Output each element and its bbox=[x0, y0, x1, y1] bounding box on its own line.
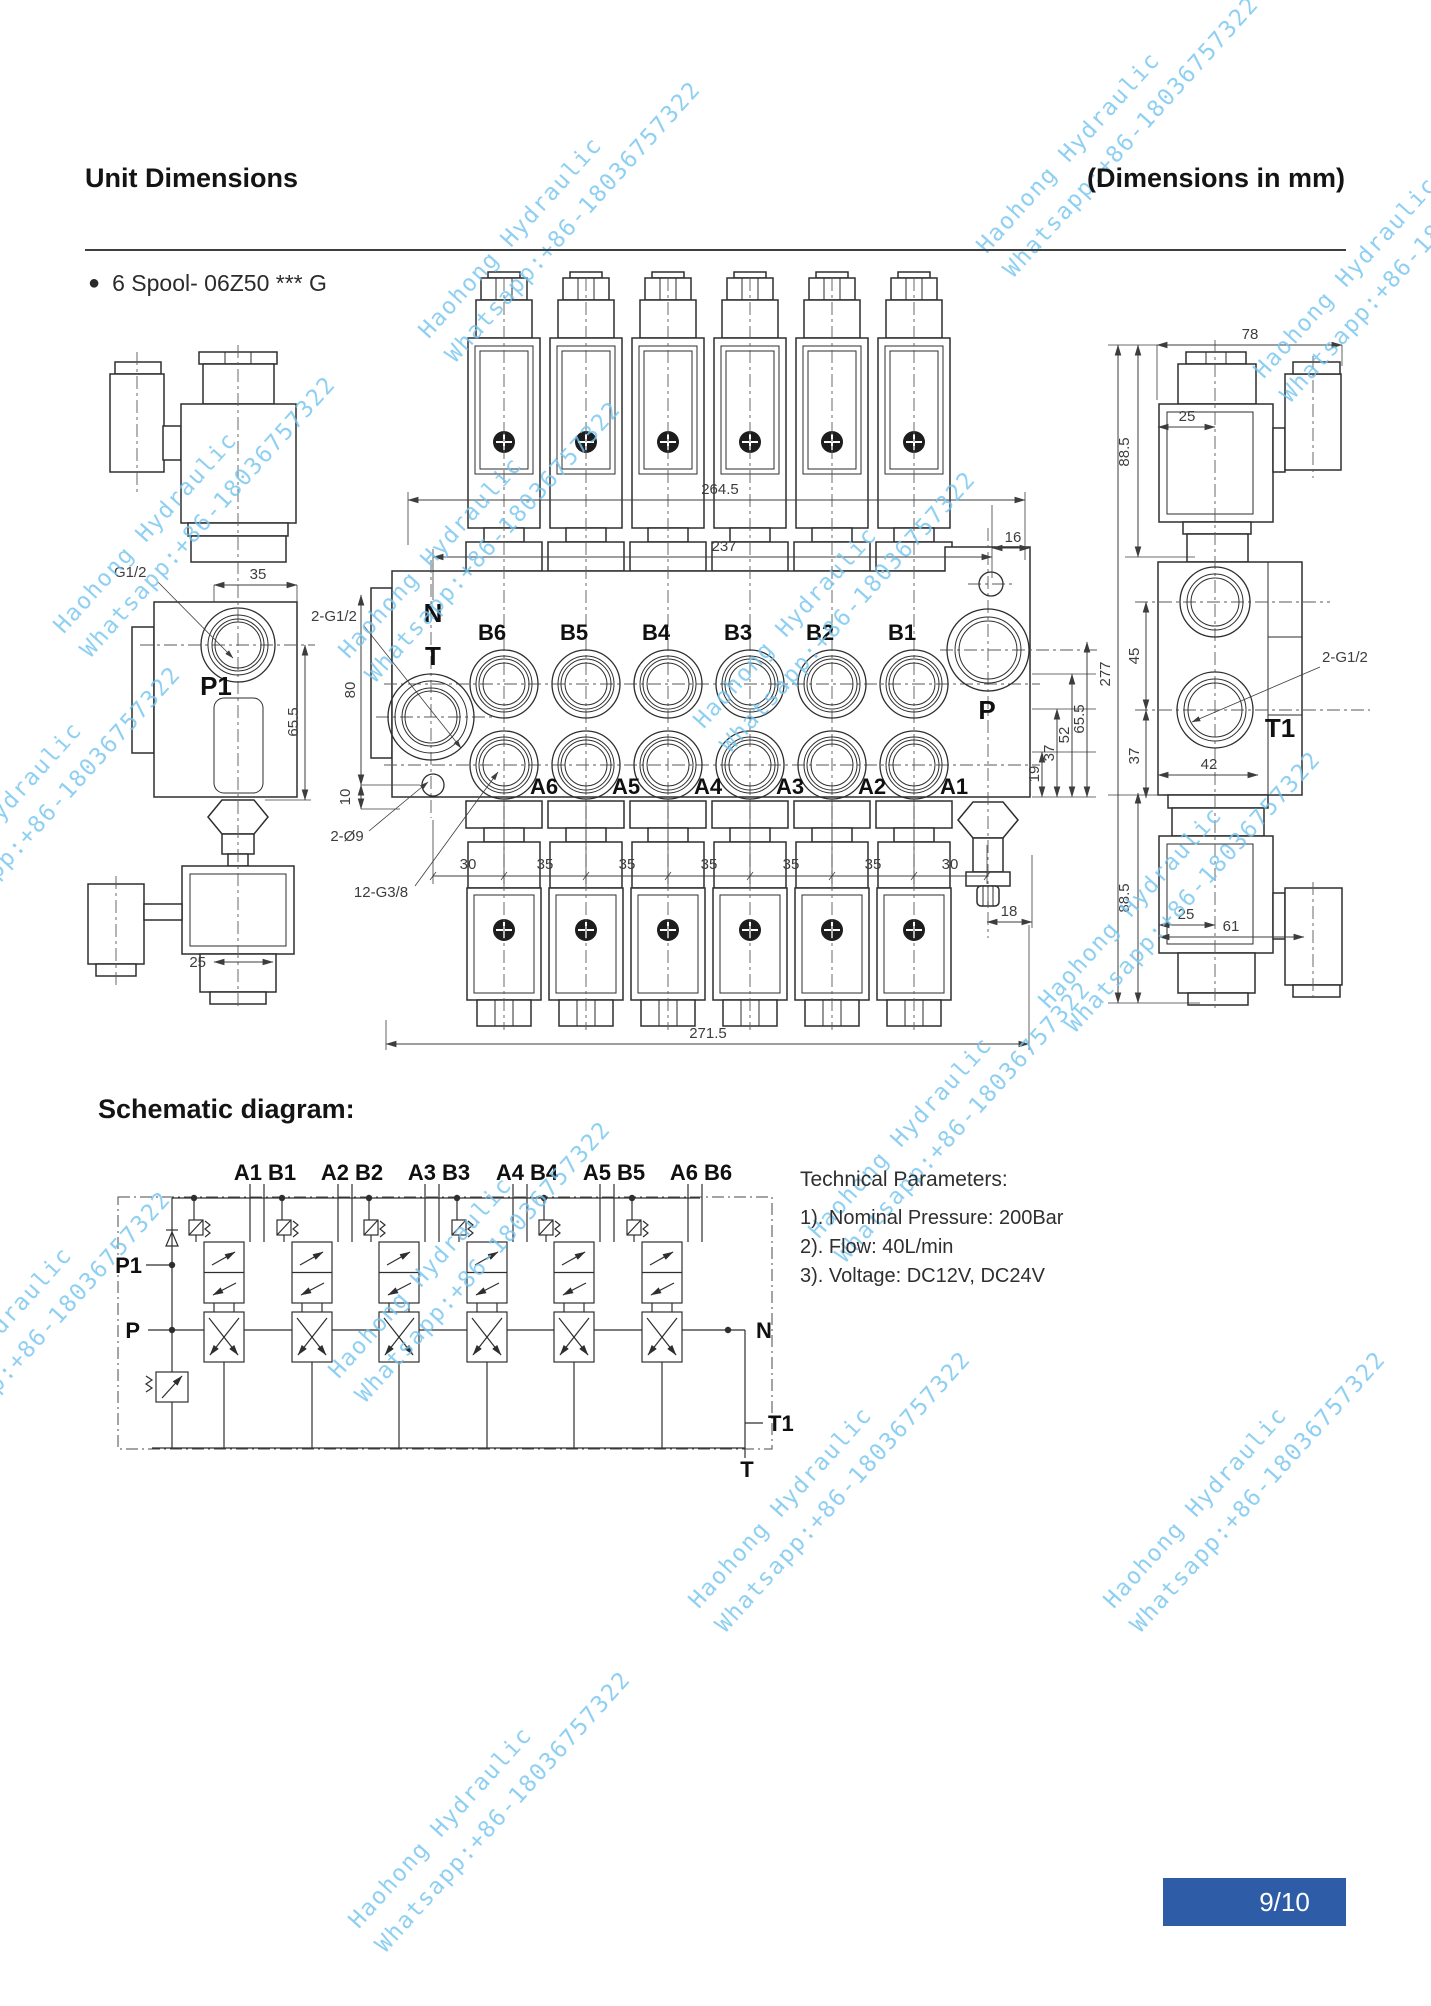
port-label-b3: B3 bbox=[724, 620, 752, 645]
bullet-icon: ● bbox=[88, 272, 100, 295]
section-label-a5b5: A5 B5 bbox=[583, 1160, 645, 1185]
tech-item-voltage: 3). Voltage: DC12V, DC24V bbox=[800, 1262, 1063, 1291]
technical-drawing: N T P B6 B5 B4 B3 B2 B1 A6 A5 A4 A3 A2 A… bbox=[0, 0, 1431, 2006]
model-label: 6 Spool- 06Z50 *** G bbox=[112, 270, 327, 297]
dim-65-5: 65.5 bbox=[1071, 704, 1088, 733]
port-label-a5: A5 bbox=[612, 774, 640, 799]
page-number: 9/10 bbox=[1259, 1887, 1310, 1917]
port-label-t: T bbox=[425, 641, 441, 671]
dim-35: 35 bbox=[250, 566, 267, 583]
section-label-a6b6: A6 B6 bbox=[670, 1160, 732, 1185]
dim-pitch-35: 35 bbox=[783, 856, 800, 873]
rail-label-t: T bbox=[740, 1457, 754, 1482]
dim-277: 277 bbox=[1097, 661, 1114, 686]
front-view: N T P B6 B5 B4 B3 B2 B1 A6 A5 A4 A3 A2 A… bbox=[311, 272, 1098, 1050]
dim-pitch-35: 35 bbox=[701, 856, 718, 873]
port-label-p: P bbox=[978, 695, 995, 725]
dim-10: 10 bbox=[337, 789, 354, 806]
dim-25-left: 25 bbox=[189, 954, 206, 971]
schematic-heading: Schematic diagram: bbox=[98, 1094, 355, 1125]
dim-pitch-35: 35 bbox=[537, 856, 554, 873]
port-label-b2: B2 bbox=[806, 620, 834, 645]
section-label-a1b1: A1 B1 bbox=[234, 1160, 296, 1185]
port-label-a2: A2 bbox=[858, 774, 886, 799]
tech-item-pressure: 1). Nominal Pressure: 200Bar bbox=[800, 1204, 1063, 1233]
dim-25-bottom: 25 bbox=[1178, 906, 1195, 923]
dimensions-unit-note: (Dimensions in mm) bbox=[1087, 163, 1345, 194]
dim-78: 78 bbox=[1242, 326, 1259, 343]
valve-section-1 bbox=[189, 1184, 264, 1448]
page-title: Unit Dimensions bbox=[85, 163, 298, 194]
right-view: 2-G1/2 T1 78 25 88.5 88.5 277 45 37 42 bbox=[1097, 326, 1370, 1012]
dim-271-5: 271.5 bbox=[689, 1025, 727, 1042]
dim-45: 45 bbox=[1126, 648, 1143, 665]
dim-16: 16 bbox=[1005, 529, 1022, 546]
valve-section-6 bbox=[627, 1184, 702, 1448]
dim-88-5-top: 88.5 bbox=[1116, 437, 1133, 466]
label-g12: G1/2 bbox=[114, 564, 147, 581]
port-label-b4: B4 bbox=[642, 620, 671, 645]
rail-label-t1: T1 bbox=[768, 1411, 794, 1436]
dim-264-5: 264.5 bbox=[701, 481, 739, 498]
port-label-a6: A6 bbox=[530, 774, 558, 799]
dim-pitch-35: 35 bbox=[619, 856, 636, 873]
rail-label-p1: P1 bbox=[115, 1253, 142, 1278]
port-label-b5: B5 bbox=[560, 620, 588, 645]
port-label-n: N bbox=[424, 598, 443, 628]
right-dim-chain: 19 37 52 65.5 bbox=[1026, 642, 1096, 797]
dim-42: 42 bbox=[1201, 756, 1218, 773]
valve-section-4 bbox=[452, 1184, 527, 1448]
port-label-a3: A3 bbox=[776, 774, 804, 799]
label-12-g38: 12-G3/8 bbox=[354, 884, 408, 901]
dim-80: 80 bbox=[342, 682, 359, 699]
valve-section-2 bbox=[277, 1184, 352, 1448]
schematic-diagram: A1 B1 A2 B2 A3 B3 A4 B4 A5 B5 A6 B6 P1 P… bbox=[115, 1160, 794, 1482]
dim-pitch-30r: 30 bbox=[942, 856, 959, 873]
port-label-b1: B1 bbox=[888, 620, 916, 645]
tech-item-flow: 2). Flow: 40L/min bbox=[800, 1233, 1063, 1262]
rail-label-n: N bbox=[756, 1318, 772, 1343]
port-label-b6: B6 bbox=[478, 620, 506, 645]
dim-19: 19 bbox=[1026, 766, 1043, 783]
dim-61: 61 bbox=[1223, 918, 1240, 935]
dim-18: 18 bbox=[1001, 903, 1018, 920]
section-label-a3b3: A3 B3 bbox=[408, 1160, 470, 1185]
valve-section-5 bbox=[539, 1184, 614, 1448]
dim-pitch-35: 35 bbox=[865, 856, 882, 873]
datasheet-page: Unit Dimensions (Dimensions in mm) ● 6 S… bbox=[0, 0, 1431, 2006]
tech-title: Technical Parameters: bbox=[800, 1168, 1063, 1192]
label-2-g12-right: 2-G1/2 bbox=[1322, 649, 1368, 666]
port-label-a1: A1 bbox=[940, 774, 968, 799]
dim-25-top: 25 bbox=[1179, 408, 1196, 425]
left-view: P1 G1/2 35 65.5 25 bbox=[88, 345, 315, 1010]
model-bullet: ● 6 Spool- 06Z50 *** G bbox=[88, 270, 327, 297]
dim-65-5-left: 65.5 bbox=[285, 707, 302, 736]
label-2-d9: 2-Ø9 bbox=[330, 828, 363, 845]
page-number-badge: 9/10 bbox=[1163, 1878, 1346, 1926]
dim-pitch-30l: 30 bbox=[460, 856, 477, 873]
dim-37: 37 bbox=[1041, 745, 1058, 762]
header-rule bbox=[85, 249, 1346, 251]
technical-parameters: Technical Parameters: 1). Nominal Pressu… bbox=[800, 1168, 1063, 1291]
dim-237: 237 bbox=[711, 538, 736, 555]
rail-label-p: P bbox=[125, 1318, 140, 1343]
dim-37-right: 37 bbox=[1126, 748, 1143, 765]
section-label-a4b4: A4 B4 bbox=[496, 1160, 559, 1185]
port-label-a4: A4 bbox=[694, 774, 723, 799]
section-label-a2b2: A2 B2 bbox=[321, 1160, 383, 1185]
label-2-g12: 2-G1/2 bbox=[311, 608, 357, 625]
dim-88-5-bottom: 88.5 bbox=[1116, 883, 1133, 912]
port-label-p1: P1 bbox=[200, 671, 232, 701]
valve-section-3 bbox=[364, 1184, 439, 1448]
port-label-t1: T1 bbox=[1265, 713, 1295, 743]
end-plate bbox=[371, 588, 392, 758]
